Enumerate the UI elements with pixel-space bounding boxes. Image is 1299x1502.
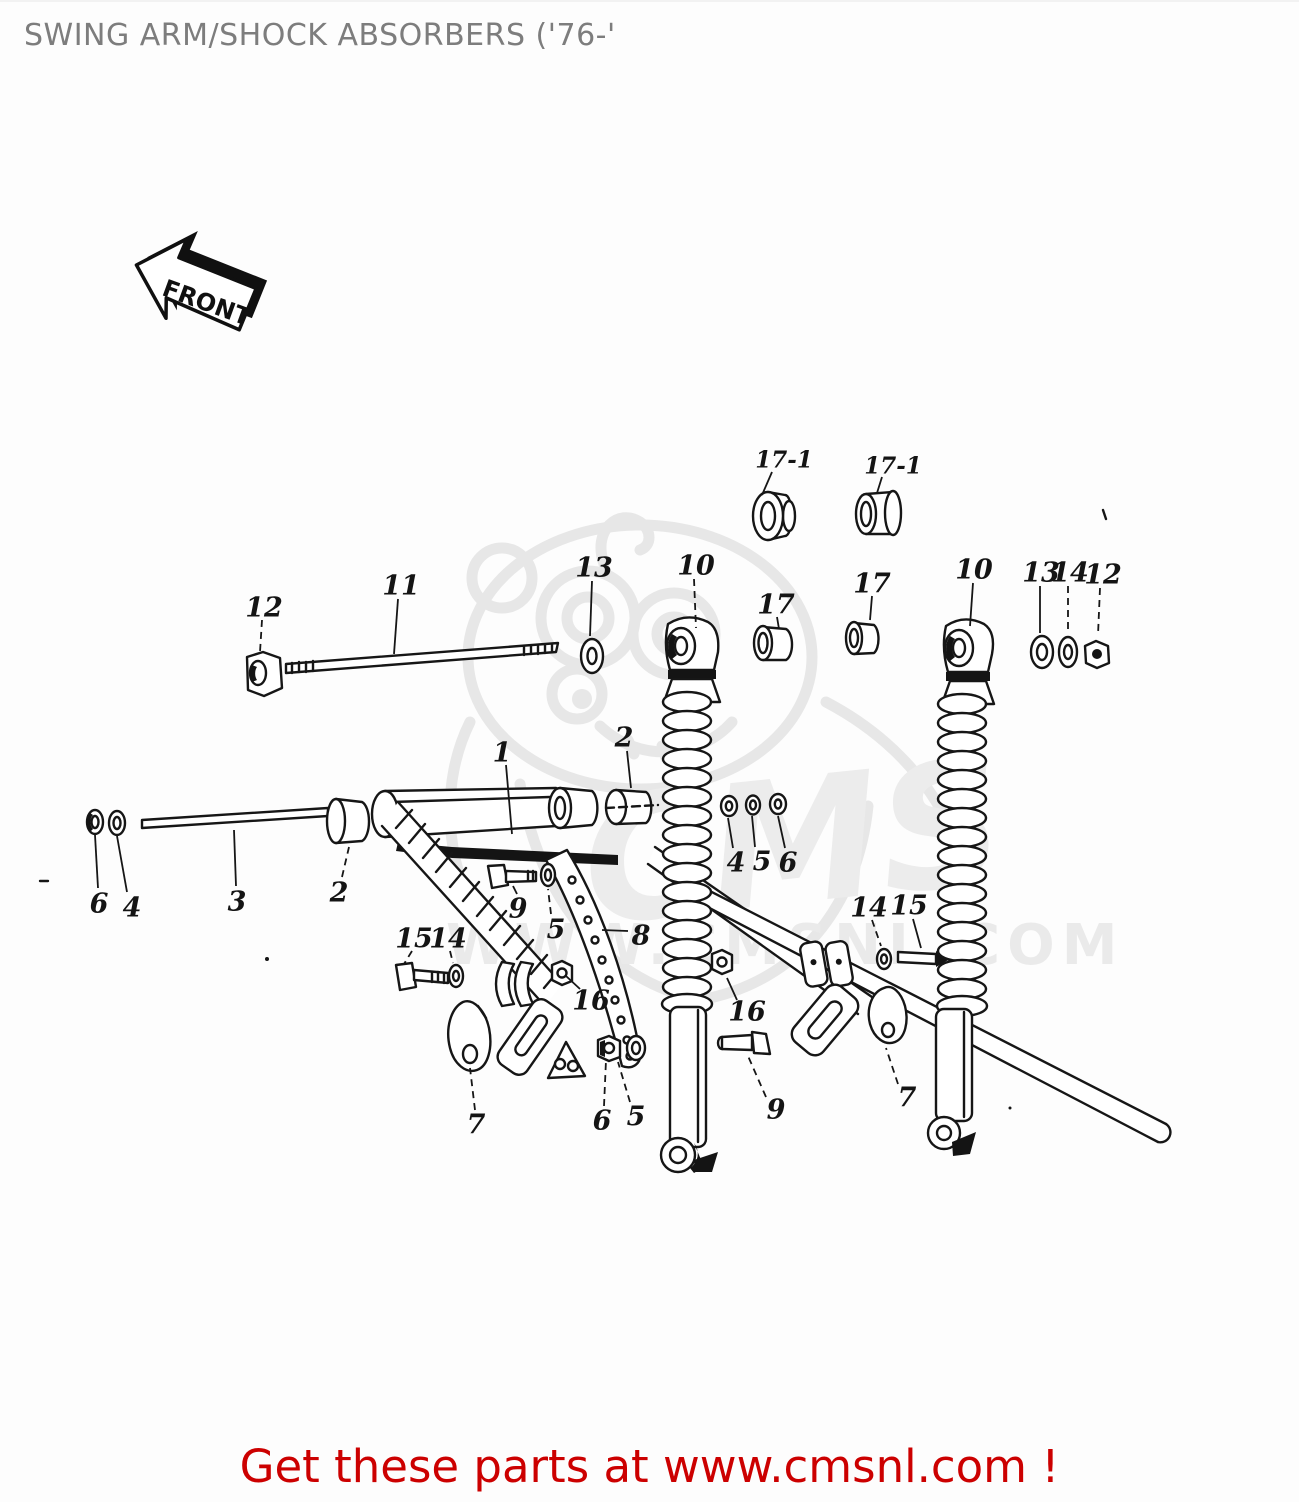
bushing-17-a — [754, 626, 792, 660]
part-number-label: 15 — [395, 924, 433, 955]
washer-6-left — [87, 810, 103, 834]
callout-leader — [260, 620, 262, 652]
bushing-17-b — [846, 622, 878, 654]
bolt-9-top — [488, 865, 536, 888]
washer-14-left — [449, 965, 463, 987]
bushing-17-1-a — [753, 492, 795, 540]
front-arrow-icon: FRONT — [127, 220, 274, 337]
part-number-label: 6 — [593, 1106, 612, 1137]
bolt-9-bottom — [718, 1032, 770, 1054]
callout-leader — [117, 836, 127, 892]
part-number-label: 9 — [509, 894, 528, 925]
part-number-label: 6 — [779, 848, 798, 879]
part-number-label: 5 — [753, 847, 772, 878]
part-number-label: 17 — [853, 569, 891, 600]
part-number-label: 9 — [767, 1095, 786, 1126]
cover-7-right — [869, 987, 907, 1043]
part-number-label: 14 — [850, 893, 888, 924]
callout-leader — [604, 1060, 606, 1106]
washer-14-right — [877, 949, 891, 969]
part-number-label: 2 — [329, 878, 349, 909]
washer-4-left — [109, 811, 125, 835]
part-number-label: 5 — [627, 1102, 646, 1133]
callout-leader — [394, 599, 398, 654]
nut-16-right — [712, 950, 732, 974]
part-number-label: 7 — [467, 1110, 486, 1141]
callout-leader — [342, 847, 349, 877]
washer-13-left — [581, 639, 603, 673]
pivot-shaft-3 — [142, 808, 328, 828]
washer-5-bottom — [627, 1036, 645, 1060]
part-number-label: 3 — [228, 887, 247, 918]
part-number-label: 1 — [493, 738, 512, 769]
washer-14-right-top — [1059, 637, 1077, 667]
nut-12-left — [247, 652, 282, 696]
part-number-label: 17 — [757, 590, 795, 621]
shock-absorber-left — [661, 617, 720, 1173]
part-number-label: 4 — [123, 893, 142, 924]
footer-promo-link[interactable]: Get these parts at www.cmsnl.com ! — [0, 1440, 1299, 1493]
part-number-label: 17-1 — [864, 452, 922, 479]
washer-4-mid — [721, 796, 737, 816]
bolt-15-left — [396, 963, 448, 990]
part-number-label: 10 — [677, 551, 715, 582]
part-number-label: 6 — [90, 889, 109, 920]
callout-leader — [602, 930, 628, 931]
washer-6-mid — [770, 794, 786, 814]
nut-12-right — [1085, 641, 1109, 668]
part-number-label: 16 — [728, 997, 766, 1028]
nut-16-left — [552, 961, 572, 985]
part-number-label: 12 — [1084, 560, 1122, 591]
callout-leader — [886, 1048, 898, 1084]
bushing-17-1-b — [856, 491, 901, 535]
parts-diagram-canvas: CMS WWW.CMSNL.COM FRONT — [0, 2, 1299, 1502]
part-number-label: 14 — [1051, 558, 1089, 589]
callout-leader — [234, 830, 236, 886]
washer-5-mid — [746, 796, 760, 815]
part-number-label: 7 — [898, 1083, 917, 1114]
part-number-label: 14 — [429, 924, 467, 955]
callout-leader — [95, 835, 98, 888]
part-number-label: 8 — [631, 921, 651, 952]
washer-5-top — [541, 864, 555, 886]
part-number-label: 17-1 — [755, 446, 813, 473]
callout-leader — [548, 889, 551, 914]
part-number-label: 2 — [614, 723, 634, 754]
part-number-label: 15 — [890, 891, 928, 922]
washer-13-right — [1031, 636, 1053, 668]
nut-6-bottom — [598, 1036, 620, 1061]
part-number-label: 10 — [955, 555, 993, 586]
callout-leader — [470, 1068, 475, 1110]
part-number-label: 4 — [727, 848, 746, 879]
part-number-label: 13 — [575, 553, 613, 584]
callout-leader — [590, 581, 592, 636]
clevis-bracket — [548, 1042, 585, 1078]
callout-leader — [748, 1056, 766, 1097]
cover-7-left — [448, 1001, 490, 1071]
pivot-bolt-11 — [286, 643, 558, 673]
part-number-label: 5 — [547, 915, 566, 946]
part-number-label: 11 — [382, 571, 420, 602]
bushing-2-left — [327, 799, 369, 843]
part-number-label: 12 — [245, 593, 283, 624]
callout-leader — [877, 477, 882, 493]
callout-leader — [1098, 588, 1100, 635]
parts-diagram-page: SWING ARM/SHOCK ABSORBERS ('76-' — [0, 0, 1299, 1502]
part-number-label: 16 — [572, 986, 610, 1017]
